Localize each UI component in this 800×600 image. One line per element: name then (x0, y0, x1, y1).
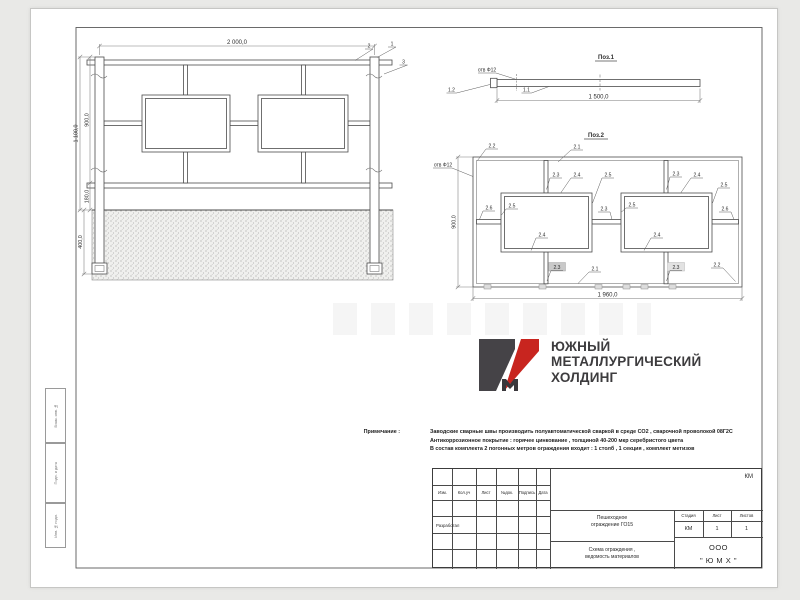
pos2-callout: 2.2 (489, 144, 496, 150)
tb-sheet-title: Схема ограждения , ведомость материалов (550, 547, 674, 561)
pos1-callout-1-2: 1.2 (448, 88, 455, 94)
title-block: Изм. Кол.уч Лист №док. Подпись Дата Разр… (432, 468, 762, 568)
drawing-canvas: 2 000,0 1 100,0 900,0 180,0 (0, 0, 800, 600)
pos2-callout: 2.4 (694, 173, 701, 179)
dim-section-height: 900,0 (85, 55, 93, 185)
tb-doc-name: Пешеходное ограждение ГО15 (550, 515, 674, 529)
left-post (95, 57, 104, 272)
pos2-callout: 2.3 (673, 172, 680, 178)
notes-line3: В состав комплекта 2 погонных метров огр… (430, 445, 790, 454)
pos2-callout-highlighted: 2.3 (554, 265, 561, 271)
logo-text-line2: МЕТАЛЛУРГИЧЕСКИЙ (551, 354, 701, 369)
pos2-callout: 2.1 (592, 267, 599, 273)
pos2-hole-label: отв Ф12 (434, 163, 453, 169)
tb-sheet-title-line2: ведомость материалов (550, 554, 674, 561)
pos2-callout: 2.3 (601, 207, 608, 213)
company-logo: ЮЖНЫЙ МЕТАЛЛУРГИЧЕСКИЙ ХОЛДИНГ (476, 334, 701, 392)
tb-company-line2: " Ю М Х " (674, 554, 763, 567)
tb-col-izm: Изм. (433, 486, 452, 500)
pos2-title: Поз.2 (588, 133, 605, 139)
fence-elevation-view: 2 000,0 1 100,0 900,0 180,0 (74, 40, 408, 280)
margin-stamp-cell-middle: Подп. и дата (45, 443, 66, 503)
tb-company-line1: ООО (674, 541, 763, 554)
tb-col-podpis: Подпись (518, 486, 536, 500)
notes-label: Примечание : (280, 428, 400, 454)
tb-stage-header: Стадия (674, 510, 703, 521)
dim-total-height-label: 1 100,0 (74, 125, 80, 143)
elevation-callouts: 2 1 3 (355, 42, 408, 75)
left-panel (142, 95, 230, 152)
tb-doc-code: КМ (550, 471, 753, 483)
dim-total-height: 1 100,0 (74, 55, 96, 212)
margin-stamp-label: Инв. № подл. (54, 514, 58, 538)
right-post (370, 57, 379, 272)
tb-sheet-title-line1: Схема ограждения , (550, 547, 674, 554)
notes-text: Заводские сварные швы производить полуав… (430, 428, 790, 454)
tb-sheet-value: 1 (703, 521, 731, 537)
pos2-callout: 2.4 (654, 233, 661, 239)
logo-m-mark (476, 334, 542, 392)
tb-doc-name-line2: ограждение ГО15 (550, 522, 674, 529)
tb-sheets-value: 1 (731, 521, 762, 537)
tb-sheets-header: Листов (731, 510, 762, 521)
top-rail (87, 60, 392, 65)
tb-col-data: Дата (536, 486, 550, 500)
callout-2: 2 (368, 44, 371, 50)
pos1-detail-view: Поз.1 отв Ф12 1.2 1.1 1 500,0 (447, 55, 703, 103)
notes-block: Примечание : Заводские сварные швы произ… (280, 428, 790, 454)
logo-text-line3: ХОЛДИНГ (551, 370, 701, 385)
ground-hatch (92, 210, 393, 280)
pos2-callout-highlighted: 2.3 (673, 265, 680, 271)
pos2-callout: 2.5 (605, 173, 612, 179)
logo-text: ЮЖНЫЙ МЕТАЛЛУРГИЧЕСКИЙ ХОЛДИНГ (551, 334, 701, 392)
pos2-detail-view: Поз.2 (433, 133, 744, 301)
pos2-callout: 2.6 (722, 207, 729, 213)
pos1-dim-length-label: 1 500,0 (588, 94, 609, 100)
pos2-callout: 2.5 (721, 183, 728, 189)
logo-text-line1: ЮЖНЫЙ (551, 339, 701, 354)
pos2-left-panel (501, 193, 592, 252)
tb-col-koluch: Кол.уч (452, 486, 476, 500)
tb-razrabotal: Разработал (434, 519, 478, 533)
pos2-callout: 2.2 (714, 263, 721, 269)
margin-stamp-cell-bottom: Инв. № подл. (45, 503, 66, 548)
pos2-dim-height-label: 900,0 (452, 215, 458, 229)
pos2-callout: 2.3 (553, 173, 560, 179)
dim-rail-offset-label: 180,0 (85, 190, 91, 204)
pos2-callout: 2.6 (486, 206, 493, 212)
pos2-callout: 2.1 (574, 145, 581, 151)
pos1-hole-label: отв Ф12 (478, 68, 497, 74)
margin-stamp-label: Взам. инв. № (54, 404, 58, 427)
pos1-title: Поз.1 (598, 55, 615, 61)
callout-3: 3 (402, 60, 405, 66)
pos1-end-cap (491, 78, 498, 87)
margin-stamp: Взам. инв. № Подп. и дата Инв. № подл. (45, 388, 66, 548)
tb-doc-name-line1: Пешеходное (550, 515, 674, 522)
dim-width: 2 000,0 (97, 40, 376, 55)
tb-col-ndok: №док. (496, 486, 518, 500)
pos2-callout: 2.4 (539, 233, 546, 239)
pos2-callout: 2.4 (574, 173, 581, 179)
tb-col-list: Лист (476, 486, 496, 500)
dim-section-height-label: 900,0 (85, 113, 91, 127)
dim-width-label: 2 000,0 (227, 40, 248, 46)
notes-line1: Заводские сварные швы производить полуав… (430, 428, 790, 437)
callout-1: 1 (391, 42, 394, 48)
pos1-bar (497, 80, 700, 87)
pos2-dim-width-label: 1 960,0 (597, 292, 618, 298)
pos2-dim-width: 1 960,0 (471, 287, 744, 301)
tb-sheet-header: Лист (703, 510, 731, 521)
pos1-callout-1-1: 1.1 (523, 88, 530, 94)
dim-embed-depth-label: 400,0 (78, 235, 84, 249)
right-panel (258, 95, 348, 152)
tb-stage-value: КМ (674, 521, 703, 537)
tb-company: ООО " Ю М Х " (674, 541, 763, 567)
dim-embed-depth: 400,0 (78, 208, 92, 276)
bottom-rail (87, 183, 392, 188)
notes-line2: Антикоррозионное покрытие : горячее цинк… (430, 437, 790, 446)
margin-stamp-cell-top: Взам. инв. № (45, 388, 66, 443)
margin-stamp-label: Подп. и дата (54, 462, 58, 484)
pos2-callout: 2.5 (509, 204, 516, 210)
pos2-callout: 2.5 (629, 203, 636, 209)
